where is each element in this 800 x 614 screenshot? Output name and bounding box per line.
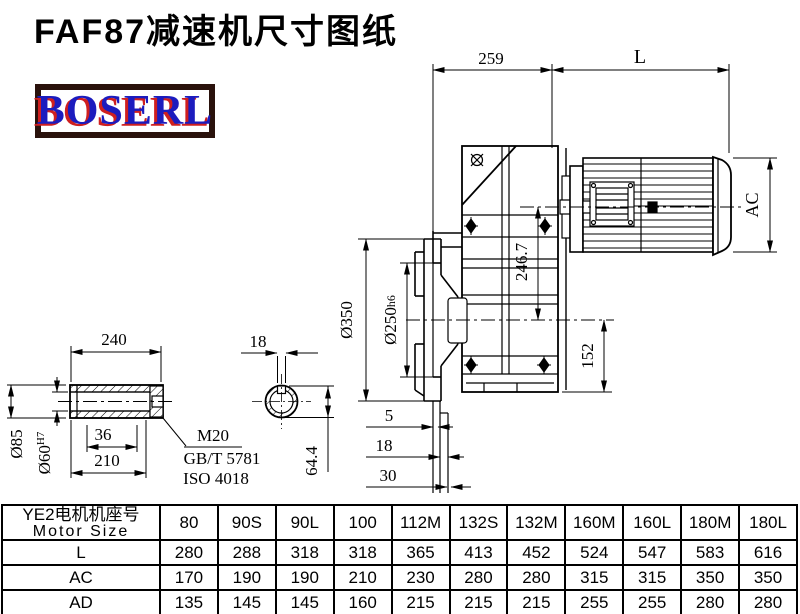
- table-cell: 145: [218, 590, 276, 614]
- table-cell: 145: [276, 590, 334, 614]
- dimension-label: Ø250h6: [381, 295, 400, 345]
- motor-size-header-en: Motor Size: [3, 524, 159, 539]
- table-cell: 280: [739, 590, 797, 614]
- table-cell: 524: [565, 540, 623, 565]
- table-column-header: 180L: [739, 505, 797, 540]
- table-row: L280288318318365413452524547583616: [2, 540, 797, 565]
- shaft-detail-view: 240 Ø85 Ø60H7 36 210 M20 GB/T 5781 ISO 4…: [7, 330, 260, 488]
- table-cell: 135: [160, 590, 218, 614]
- table-cell: 160: [334, 590, 392, 614]
- dimension-label: 18: [250, 332, 267, 351]
- drawing-sheet: 259 L AC 246.7 152 Ø350 Ø250h6 5 18 30: [0, 0, 800, 614]
- motor-size-header-cn: YE2电机机座号: [3, 506, 159, 524]
- page-title: FAF87减速机尺寸图纸: [34, 4, 398, 53]
- table-cell: 215: [392, 590, 450, 614]
- motor-size-table: YE2电机机座号Motor Size8090S90L100112M132S132…: [1, 504, 798, 614]
- hollow-shaft: [58, 385, 174, 418]
- table-cell: 170: [160, 565, 218, 590]
- table-cell: 547: [623, 540, 681, 565]
- dimension-label: AC: [742, 192, 762, 217]
- table-cell: 318: [276, 540, 334, 565]
- table-header-motor-size: YE2电机机座号Motor Size: [2, 505, 160, 540]
- dimension-label: 36: [95, 425, 112, 444]
- table-cell: 350: [681, 565, 739, 590]
- table-cell: 255: [565, 590, 623, 614]
- table-cell: 616: [739, 540, 797, 565]
- fan-cover: [713, 157, 731, 255]
- dimension-label: 259: [478, 49, 504, 68]
- table-cell: 280: [681, 590, 739, 614]
- table-cell: 215: [450, 590, 508, 614]
- table-column-header: 160L: [623, 505, 681, 540]
- table-cell: 190: [218, 565, 276, 590]
- brand-logo-text: BOSERL: [37, 90, 213, 132]
- dimension-label: 240: [101, 330, 127, 349]
- table-row-label: AC: [2, 565, 160, 590]
- table-cell: 452: [507, 540, 565, 565]
- table-cell: 315: [623, 565, 681, 590]
- table-column-header: 160M: [565, 505, 623, 540]
- dimension-drawing: 259 L AC 246.7 152 Ø350 Ø250h6 5 18 30: [0, 0, 800, 505]
- output-flange: [415, 231, 467, 493]
- table-cell: 280: [507, 565, 565, 590]
- standard-note-gb: GB/T 5781: [184, 449, 261, 468]
- shaft-dimension-labels: 240 Ø85 Ø60H7 36 210 M20 GB/T 5781 ISO 4…: [7, 330, 260, 488]
- dimension-label: L: [634, 46, 646, 68]
- table-column-header: 90L: [276, 505, 334, 540]
- dimension-label: 18: [376, 436, 393, 455]
- thread-note: M20: [197, 426, 229, 445]
- table-cell: 288: [218, 540, 276, 565]
- table-cell: 190: [276, 565, 334, 590]
- table-column-header: 180M: [681, 505, 739, 540]
- table-column-header: 112M: [392, 505, 450, 540]
- table-column-header: 90S: [218, 505, 276, 540]
- standard-note-iso: ISO 4018: [183, 469, 249, 488]
- table-cell: 318: [334, 540, 392, 565]
- dimension-label: 210: [94, 451, 120, 470]
- table-cell: 230: [392, 565, 450, 590]
- table-row: AD135145145160215215215255255280280: [2, 590, 797, 614]
- brand-logo: BOSERL: [35, 84, 215, 138]
- dimension-label: Ø85: [7, 429, 26, 458]
- table-column-header: 100: [334, 505, 392, 540]
- table-cell: 255: [623, 590, 681, 614]
- table-cell: 315: [565, 565, 623, 590]
- dimension-label: 30: [380, 466, 397, 485]
- table-row-label: L: [2, 540, 160, 565]
- table-cell: 210: [334, 565, 392, 590]
- table-cell: 280: [160, 540, 218, 565]
- table-cell: 413: [450, 540, 508, 565]
- table-column-header: 80: [160, 505, 218, 540]
- table-cell: 215: [507, 590, 565, 614]
- main-view: 259 L AC 246.7 152 Ø350 Ø250h6 5 18 30: [337, 46, 777, 493]
- dimension-label: 5: [385, 406, 394, 425]
- table-row: AC170190190210230280280315315350350: [2, 565, 797, 590]
- dimension-label: Ø350: [337, 301, 356, 339]
- table-cell: 280: [450, 565, 508, 590]
- table-cell: 365: [392, 540, 450, 565]
- table-cell: 583: [681, 540, 739, 565]
- dimension-label: 64.4: [302, 446, 321, 476]
- dimension-label: 246.7: [512, 242, 531, 281]
- table-column-header: 132M: [507, 505, 565, 540]
- motor: [560, 157, 731, 255]
- table-row-label: AD: [2, 590, 160, 614]
- table-column-header: 132S: [450, 505, 508, 540]
- dimension-label: 152: [578, 343, 597, 369]
- dimension-label: Ø60H7: [35, 431, 54, 474]
- dimension-lines: [366, 70, 770, 487]
- table-cell: 350: [739, 565, 797, 590]
